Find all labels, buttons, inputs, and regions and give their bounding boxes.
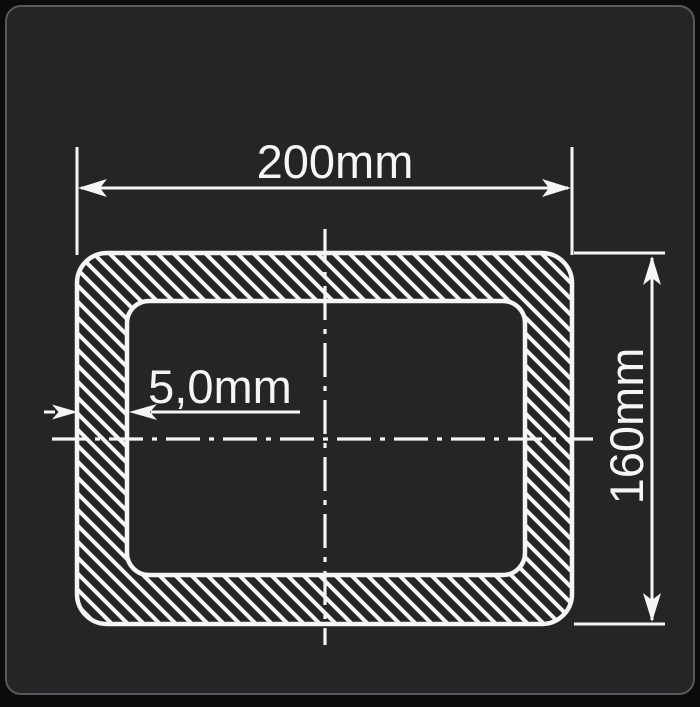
width-dimension-label: 200mm <box>257 135 414 188</box>
cross-section-diagram: 200mm 160mm 5,0mm <box>7 7 700 707</box>
thickness-arrow-outer-icon <box>52 405 78 420</box>
drawing-card: 200mm 160mm 5,0mm <box>5 5 695 695</box>
height-dimension-label: 160mm <box>600 348 653 505</box>
thickness-dimension-label: 5,0mm <box>148 360 292 413</box>
